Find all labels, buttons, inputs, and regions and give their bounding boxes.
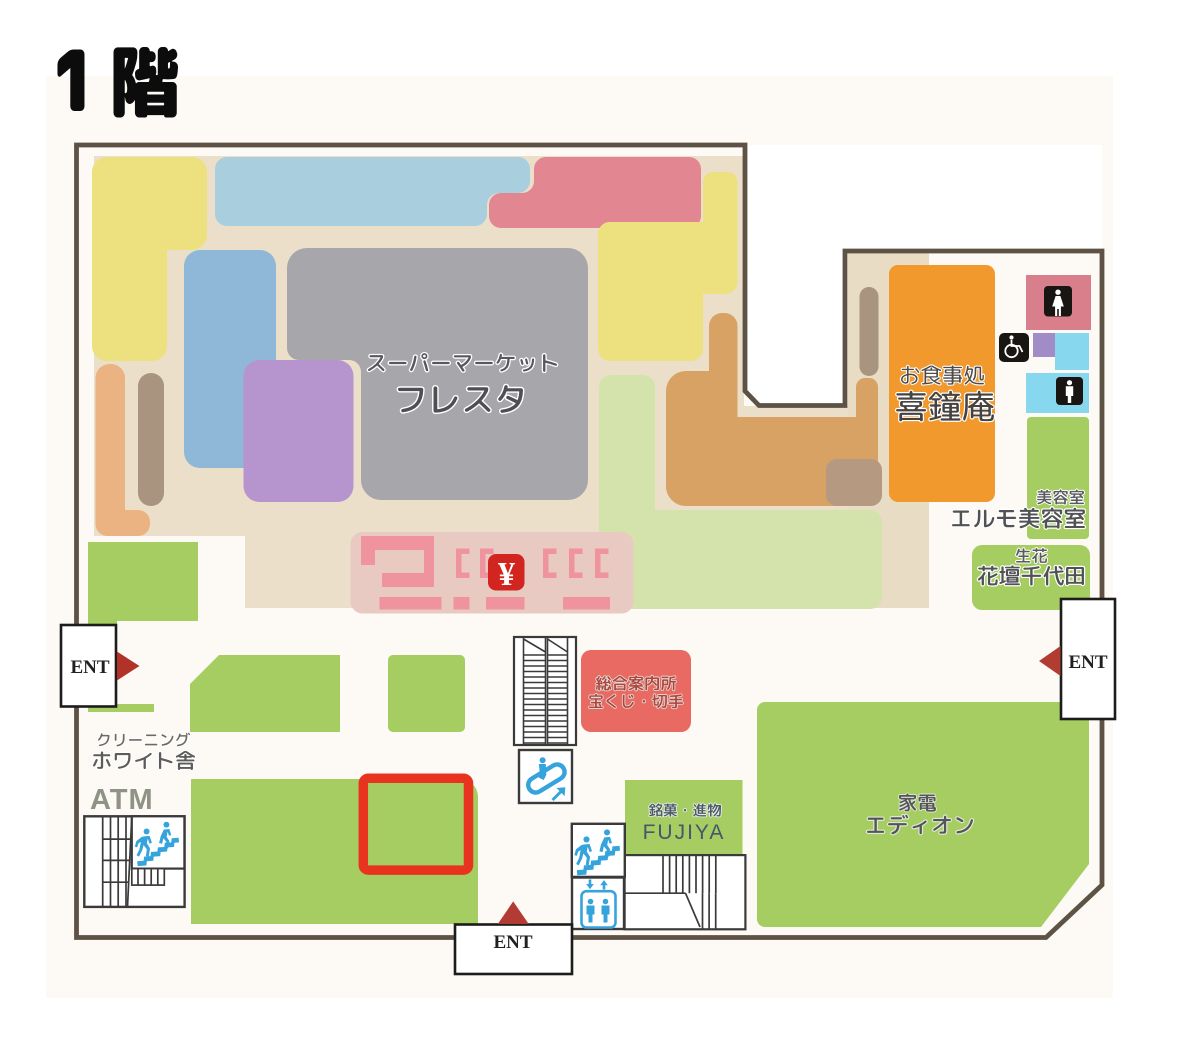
svg-text:ATM: ATM — [90, 784, 154, 816]
svg-text:ENT: ENT — [1068, 652, 1107, 673]
svg-text:FUJIYA: FUJIYA — [643, 821, 726, 844]
svg-text:ENT: ENT — [70, 657, 109, 678]
svg-text:ENT: ENT — [493, 932, 532, 953]
svg-text:¥: ¥ — [498, 556, 515, 593]
